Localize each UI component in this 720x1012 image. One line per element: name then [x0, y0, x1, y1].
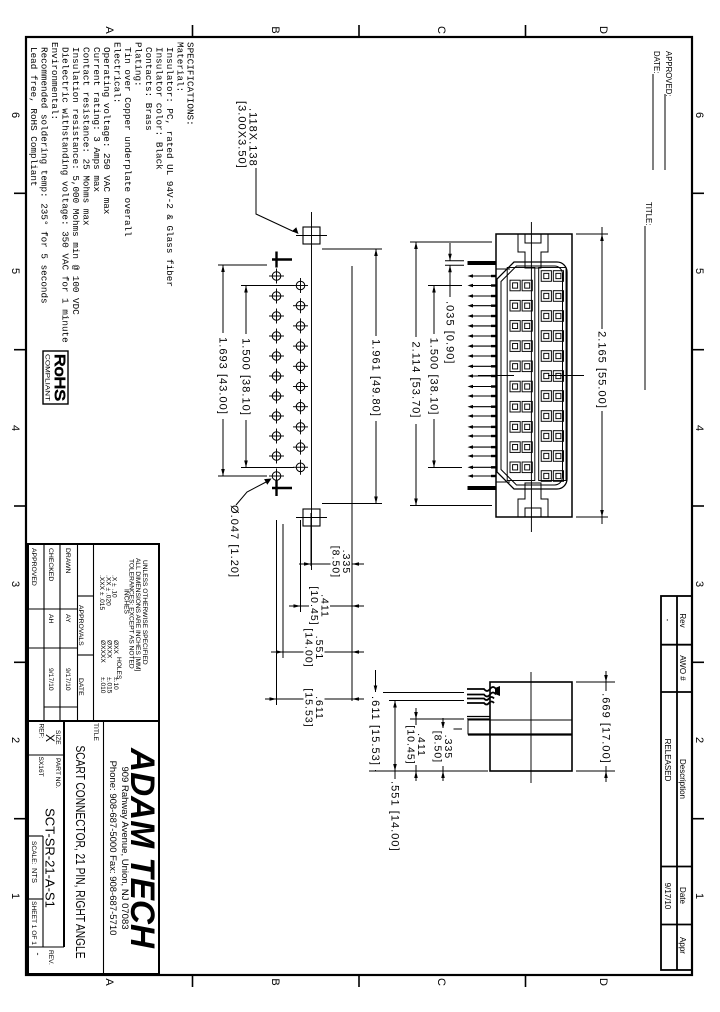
svg-text:C: C — [435, 978, 447, 986]
svg-text:6: 6 — [693, 112, 705, 118]
svg-text:[15.53]: [15.53] — [303, 688, 315, 727]
svg-text:Ø.047 [1.20]: Ø.047 [1.20] — [228, 505, 240, 578]
svg-text:Dielectric withstanding voltag: Dielectric withstanding voltage: 350 VAC… — [60, 47, 71, 343]
svg-text:PART NO.: PART NO. — [54, 758, 61, 789]
svg-text:APPROVALS: APPROVALS — [77, 605, 84, 646]
svg-text:5: 5 — [9, 268, 21, 274]
svg-text:SHEET 1 OF 1: SHEET 1 OF 1 — [30, 901, 37, 945]
svg-text:B: B — [269, 26, 281, 33]
svg-text:DRAWN: DRAWN — [64, 548, 71, 574]
svg-text:Material:: Material: — [174, 42, 185, 92]
svg-text:Electrical:: Electrical: — [112, 42, 123, 103]
svg-text:1.500 [38.10]: 1.500 [38.10] — [240, 338, 252, 416]
svg-text:B: B — [269, 978, 281, 985]
svg-text:INCHES: INCHES — [123, 589, 130, 615]
svg-text:5: 5 — [693, 268, 705, 274]
svg-text:2.165 [55.00]: 2.165 [55.00] — [596, 331, 608, 409]
svg-text:Recommended soldering temp: 23: Recommended soldering temp: 235° for 5 s… — [39, 47, 50, 304]
svg-text:ØXXXX: ØXXXX — [99, 640, 106, 663]
svg-text:SX16T: SX16T — [37, 757, 44, 777]
svg-text:.669 [17.00]: .669 [17.00] — [600, 693, 612, 764]
svg-text:[10.45]: [10.45] — [405, 725, 417, 764]
svg-text:TOLERANCES: EXCEPT AS NOTED: TOLERANCES: EXCEPT AS NOTED — [128, 559, 135, 669]
svg-text:[3.00X3.50]: [3.00X3.50] — [236, 101, 248, 169]
svg-text:D: D — [597, 978, 609, 986]
svg-text:1.500 [38.10]: 1.500 [38.10] — [428, 338, 440, 416]
svg-text:D: D — [597, 26, 609, 34]
svg-text:±.010: ±.010 — [99, 677, 106, 694]
svg-text:[14.00]: [14.00] — [303, 628, 315, 667]
svg-text:1: 1 — [9, 893, 21, 899]
svg-text:.035 [0.90]: .035 [0.90] — [444, 301, 456, 365]
svg-text:NTS: NTS — [30, 868, 39, 883]
svg-text:Plating:: Plating: — [133, 42, 144, 87]
svg-text:909 Rahway Avenue, Union, NJ 0: 909 Rahway Avenue, Union, NJ 07083 — [119, 766, 130, 929]
svg-text:A: A — [103, 978, 115, 986]
svg-text:1: 1 — [693, 893, 705, 899]
svg-text:Current rating: 3 Amps max: Current rating: 3 Amps max — [91, 47, 102, 192]
svg-text:9/17/10: 9/17/10 — [663, 883, 672, 910]
svg-text:DATE: DATE — [77, 678, 84, 696]
svg-text:Operating voltage: 250 VAC max: Operating voltage: 250 VAC max — [101, 47, 112, 215]
svg-text:C: C — [435, 26, 447, 34]
svg-text:TITLE: TITLE — [92, 723, 99, 742]
svg-text:2: 2 — [693, 737, 705, 743]
svg-text:AWO #: AWO # — [678, 655, 687, 681]
svg-text:Insulator: PC, rated UL 94V-2: Insulator: PC, rated UL 94V-2 & Glass fi… — [164, 47, 175, 287]
svg-text:A: A — [103, 26, 115, 34]
svg-text:Lead free, RoHS Compliant: Lead free, RoHS Compliant — [28, 47, 39, 186]
svg-text:SCART CONNECTOR, 21 PIN, RIGHT: SCART CONNECTOR, 21 PIN, RIGHT ANGLE — [73, 746, 87, 959]
svg-text:Description: Description — [678, 759, 687, 799]
svg-text:.551 [14.00]: .551 [14.00] — [389, 781, 401, 852]
svg-text:[8.50]: [8.50] — [330, 546, 342, 579]
svg-text:APPROVED: APPROVED — [30, 548, 37, 586]
svg-text:9/17/10: 9/17/10 — [64, 668, 71, 691]
svg-text:Appr: Appr — [678, 937, 687, 954]
svg-text:COMPLIANT: COMPLIANT — [44, 354, 51, 401]
svg-text:Rev: Rev — [678, 613, 687, 627]
svg-text:4: 4 — [693, 425, 705, 431]
svg-text:Contact resistance: 25 Mohms m: Contact resistance: 25 Mohms max — [80, 47, 91, 226]
svg-text:SCALE:: SCALE: — [30, 841, 37, 865]
svg-text:1.961 [49.80]: 1.961 [49.80] — [370, 339, 382, 417]
svg-text:APPROVED:: APPROVED: — [664, 51, 673, 97]
svg-text:[8.50]: [8.50] — [432, 731, 444, 764]
svg-text:3: 3 — [693, 581, 705, 587]
svg-text:TITLE:: TITLE: — [644, 202, 653, 225]
svg-text:4: 4 — [9, 425, 21, 431]
svg-text:3: 3 — [9, 581, 21, 587]
svg-text:SCT-SR-21-A-S1: SCT-SR-21-A-S1 — [43, 808, 58, 908]
svg-text:Contacts: Brass: Contacts: Brass — [143, 47, 154, 131]
svg-text:RELEASED: RELEASED — [663, 739, 672, 782]
svg-text:-: - — [33, 953, 43, 956]
svg-text:SPECIFICATIONS:: SPECIFICATIONS: — [185, 42, 196, 126]
svg-text:AH: AH — [47, 614, 54, 624]
svg-text:AY: AY — [64, 614, 71, 623]
svg-text:[10.45]: [10.45] — [308, 586, 320, 625]
svg-text:Insulation resistance: 5,000 M: Insulation resistance: 5,000 Mohms min @… — [70, 47, 81, 315]
svg-text:2: 2 — [9, 737, 21, 743]
svg-text:1.693 [43.00]: 1.693 [43.00] — [217, 337, 229, 415]
svg-text:X: X — [43, 734, 57, 742]
svg-text:Environmental:: Environmental: — [49, 42, 60, 120]
svg-text:6: 6 — [9, 112, 21, 118]
svg-text:.XXX ± .015: .XXX ± .015 — [98, 575, 105, 610]
svg-text:REV.: REV. — [47, 950, 54, 965]
svg-text:-: - — [663, 619, 672, 622]
svg-text:.611 [15.53]: .611 [15.53] — [369, 696, 381, 766]
svg-text:9/17/10: 9/17/10 — [47, 668, 54, 691]
svg-text:Date: Date — [678, 887, 687, 904]
svg-text:Tin over Copper underplate ove: Tin over Copper underplate overall — [122, 47, 133, 237]
svg-text:CHECKED: CHECKED — [47, 548, 54, 581]
svg-text:2.114 [53.70]: 2.114 [53.70] — [410, 341, 422, 418]
svg-text:UNLESS OTHERWISE SPECIFIED: UNLESS OTHERWISE SPECIFIED — [141, 560, 148, 665]
svg-text:DATE:: DATE: — [652, 51, 661, 73]
svg-text:Phone: 908-687-5000 Fax: 908-6: Phone: 908-687-5000 Fax: 908-687-5710 — [107, 761, 118, 936]
svg-text:RoHS: RoHS — [51, 354, 68, 401]
svg-text:Insulator color: Black: Insulator color: Black — [153, 47, 164, 170]
